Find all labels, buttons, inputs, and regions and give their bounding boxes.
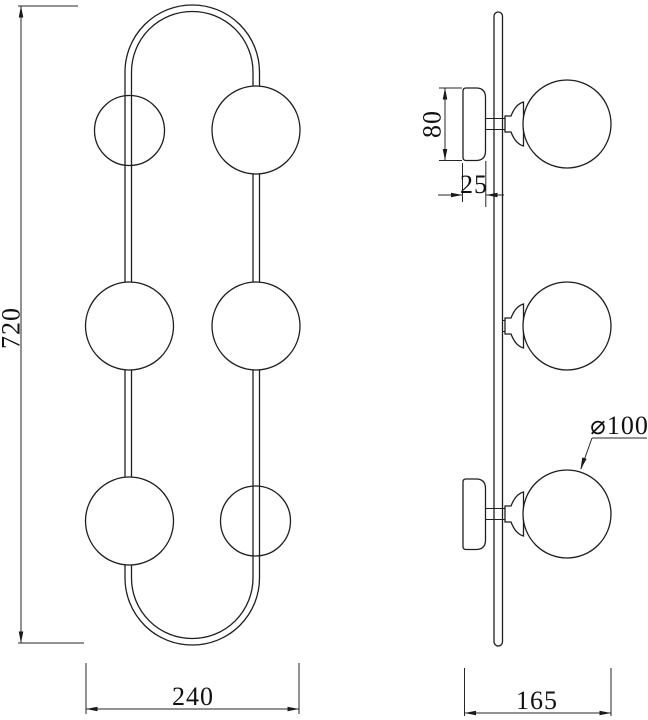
- socket-middle: [505, 304, 524, 348]
- dimension-overall-height: 720: [0, 6, 84, 643]
- shade-top-left-small: [95, 96, 165, 166]
- shade-bottom-right-small: [221, 486, 291, 556]
- dimension-overall-depth: 165: [465, 668, 612, 716]
- shade-bottom-left: [86, 477, 174, 565]
- wall-bar: [494, 12, 503, 646]
- canopy-height-label: 80: [418, 110, 447, 138]
- drawing-sheet: 720 240 80: [0, 0, 648, 720]
- arrowhead-right: [288, 707, 300, 712]
- arrowhead-down: [19, 632, 24, 644]
- shade-side-middle: [523, 282, 611, 370]
- overall-height-label: 720: [0, 307, 26, 349]
- canopy-depth-label: 25: [460, 170, 488, 199]
- socket-top: [505, 102, 524, 146]
- shade-middle-left: [86, 282, 174, 370]
- lamp-technical-drawing: 720 240 80: [0, 0, 648, 720]
- overall-depth-label: 165: [516, 686, 558, 715]
- arrowhead-down: [443, 149, 448, 161]
- overall-width-label: 240: [172, 682, 214, 711]
- socket-bottom: [505, 492, 524, 536]
- front-view: [86, 5, 301, 645]
- leader-arrowhead: [581, 457, 587, 469]
- shade-middle-right: [212, 282, 300, 370]
- arrowhead-up: [19, 6, 24, 18]
- arrowhead-up: [443, 88, 448, 100]
- dimension-canopy-height: 80: [418, 88, 463, 161]
- shade-side-bottom: [523, 470, 611, 558]
- shade-side-top: [523, 80, 611, 168]
- shade-diameter-label: ⌀100: [590, 411, 648, 440]
- canopy-bottom: [463, 479, 486, 550]
- arrowhead-right: [600, 711, 612, 716]
- arrowhead-left: [465, 711, 477, 716]
- canopy-top: [463, 88, 486, 161]
- arrowhead-left: [86, 707, 98, 712]
- shade-top-right: [212, 86, 300, 174]
- dimension-overall-width: 240: [86, 663, 299, 714]
- callout-shade-diameter: ⌀100: [581, 411, 648, 470]
- side-view: [463, 12, 611, 646]
